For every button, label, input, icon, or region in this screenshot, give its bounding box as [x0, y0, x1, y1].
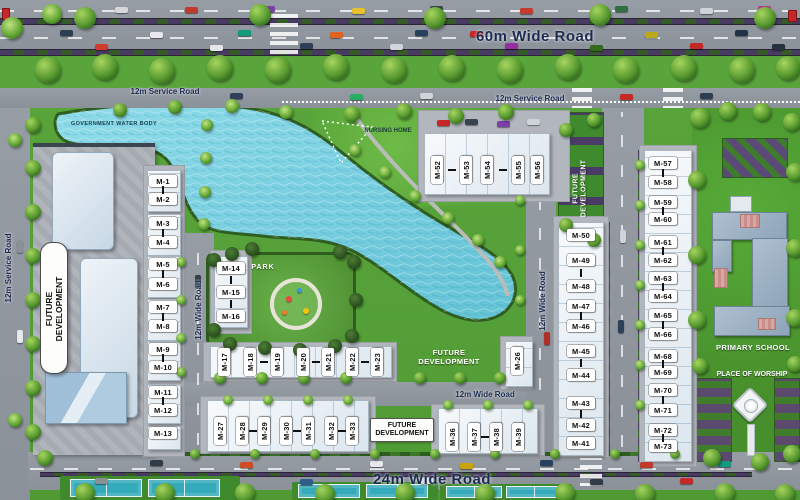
tree	[754, 7, 776, 29]
building-label: M-12	[149, 404, 177, 416]
building-label: M-48	[567, 280, 595, 292]
car	[735, 30, 748, 36]
tree	[472, 234, 484, 246]
tree	[258, 341, 272, 355]
building-pair-connector	[580, 269, 583, 277]
tree	[25, 248, 41, 264]
tree	[225, 247, 239, 261]
car	[700, 8, 713, 14]
tree	[635, 484, 655, 500]
school-roof-detail	[714, 268, 728, 288]
future-development-strip-label: FUTURE DEVELOPMENT	[573, 143, 590, 233]
building-pair-connector	[162, 313, 165, 321]
car	[300, 43, 313, 49]
tree	[381, 57, 407, 83]
building-label: M-39	[512, 423, 524, 451]
building-pair-connector	[312, 361, 320, 364]
car	[615, 6, 628, 12]
tree	[443, 400, 453, 410]
building-label: M-55	[512, 156, 524, 184]
tree	[25, 424, 41, 440]
car	[185, 7, 198, 13]
tree	[349, 144, 361, 156]
tree	[279, 105, 293, 119]
worship-dome	[744, 399, 758, 413]
tree	[323, 54, 349, 80]
car	[620, 94, 633, 100]
tree	[550, 449, 560, 459]
building-label: M-4	[149, 236, 177, 248]
tree	[35, 57, 61, 83]
building-pair-connector	[162, 186, 165, 194]
tree	[235, 483, 255, 500]
tree	[245, 242, 259, 256]
building-label: M-47	[567, 300, 595, 312]
tree	[515, 245, 525, 255]
glass-building	[45, 372, 127, 424]
tree	[610, 449, 620, 459]
building-label: M-33	[346, 417, 358, 445]
tree	[176, 367, 186, 377]
tree	[344, 106, 360, 122]
car	[60, 30, 73, 36]
building-label: M-56	[531, 156, 543, 184]
building-label: M-71	[649, 404, 677, 416]
road-label-service-top-left: 12m Service Road	[115, 88, 215, 96]
tree	[635, 280, 645, 290]
car	[350, 94, 363, 100]
road-sign	[788, 10, 797, 22]
car	[95, 478, 108, 484]
tree	[198, 218, 210, 230]
playground-equipment	[303, 308, 309, 314]
tree	[751, 453, 769, 471]
tree	[207, 323, 221, 337]
car	[640, 462, 653, 468]
building-pair-connector	[662, 321, 665, 329]
building-pair-connector	[249, 430, 257, 433]
tree	[1, 17, 23, 39]
car	[772, 44, 785, 50]
building-label: M-44	[567, 369, 595, 381]
tree	[690, 108, 710, 128]
tree	[409, 190, 421, 202]
car	[420, 93, 433, 99]
building-pair-connector	[448, 169, 456, 172]
road-label-12m-wide-mid: 12m Wide Road	[195, 260, 203, 360]
building-label: M-30	[280, 417, 292, 445]
building-label: M-26	[511, 347, 523, 375]
car	[300, 479, 313, 485]
building-label: M-31	[302, 417, 314, 445]
tree	[8, 413, 22, 427]
building-pair-connector	[580, 410, 583, 418]
tree	[587, 113, 601, 127]
building-label: M-70	[649, 384, 677, 396]
building-pair-connector	[338, 430, 346, 433]
car	[330, 32, 343, 38]
building-label: M-53	[460, 156, 472, 184]
tree	[265, 57, 291, 83]
tree	[168, 100, 182, 114]
tree	[249, 4, 271, 26]
tree	[176, 295, 186, 305]
tree	[379, 166, 391, 178]
highway-median	[0, 18, 800, 25]
crosswalk	[270, 14, 298, 56]
playground-ring	[270, 278, 322, 330]
car	[240, 462, 253, 468]
tree	[589, 4, 611, 26]
tree	[786, 163, 800, 181]
tree	[74, 7, 96, 29]
school-building	[714, 306, 790, 336]
car	[497, 121, 510, 127]
lane-marking	[30, 468, 800, 470]
building-pair-connector	[499, 169, 507, 172]
tree	[523, 400, 533, 410]
tree	[635, 160, 645, 170]
building-label: M-66	[649, 328, 677, 340]
tree	[559, 123, 573, 137]
tree	[424, 7, 446, 29]
government-water-body-label: GOVERNMENT WATER BODY	[64, 122, 164, 128]
tree	[349, 293, 363, 307]
primary-school-label: PRIMARY SCHOOL	[705, 343, 800, 352]
tree	[715, 483, 735, 500]
tree	[635, 400, 645, 410]
tree	[786, 239, 800, 257]
tree	[25, 380, 41, 396]
road-label-24m-wide: 24m Wide Road	[352, 472, 512, 487]
car	[618, 320, 624, 333]
building-label: M-54	[481, 156, 493, 184]
building-pair-connector	[162, 270, 165, 278]
tree	[42, 4, 62, 24]
building-label: M-3	[149, 217, 177, 229]
building-label: M-16	[217, 310, 245, 322]
car	[17, 330, 23, 343]
car	[150, 32, 163, 38]
building-label: M-60	[649, 213, 677, 225]
tree	[149, 58, 175, 84]
playground-equipment	[286, 296, 292, 302]
tree	[250, 449, 260, 459]
building-pair-connector	[162, 354, 165, 362]
building-pair-connector	[662, 360, 665, 368]
tree	[37, 450, 53, 466]
tree	[448, 108, 464, 124]
tree	[775, 484, 795, 500]
tree	[515, 295, 525, 305]
place-of-worship-label: PLACE OF WORSHIP	[704, 371, 800, 379]
building-label: M-62	[649, 254, 677, 266]
tree	[199, 186, 211, 198]
park-label: PARK	[246, 264, 280, 272]
tree	[176, 333, 186, 343]
tree	[200, 152, 212, 164]
building-pair-connector	[162, 397, 165, 405]
tennis-court	[506, 486, 562, 498]
building-label: M-43	[567, 397, 595, 409]
building-label: M-27	[214, 417, 226, 445]
tree	[333, 245, 347, 259]
tree	[498, 104, 514, 120]
road-label-12m-wide-center: 12m Wide Road	[539, 251, 547, 351]
building-label: M-52	[431, 156, 443, 184]
tree	[225, 99, 239, 113]
future-development-green-label: FUTURE DEVELOPMENT	[415, 348, 483, 366]
building-label: M-18	[244, 348, 256, 376]
car	[437, 120, 450, 126]
tree	[414, 372, 426, 384]
tree	[635, 200, 645, 210]
building-label: M-32	[325, 417, 337, 445]
car	[210, 45, 223, 51]
building-pair-connector	[580, 312, 583, 320]
tree	[787, 356, 800, 372]
tree	[8, 133, 22, 147]
tree	[442, 212, 454, 224]
road-label-60m-wide: 60m Wide Road	[455, 29, 615, 44]
building-label: M-2	[149, 193, 177, 205]
building-label: M-57	[649, 157, 677, 169]
building-label: M-6	[149, 278, 177, 290]
tree	[370, 449, 380, 459]
school-roof-detail	[758, 318, 776, 330]
car	[540, 460, 553, 466]
building-pair-connector	[662, 247, 665, 255]
building-pair-connector	[361, 361, 369, 364]
future-development-pill-text: FUTURE DEVELOPMENT	[41, 274, 69, 344]
building-label: M-65	[649, 309, 677, 321]
car	[115, 7, 128, 13]
building-pair-connector	[293, 430, 301, 433]
building-label: M-20	[297, 348, 309, 376]
tree	[753, 103, 771, 121]
playground-equipment	[282, 310, 287, 315]
car	[590, 45, 603, 51]
tree	[729, 57, 755, 83]
building-label: M-7	[149, 301, 177, 313]
lane-marking	[0, 37, 800, 39]
tree	[92, 54, 118, 80]
building-pair-connector	[662, 207, 665, 215]
township-master-plan: 60m Wide Road 24m Wide Road 12m Service …	[0, 0, 800, 500]
flower-bed	[722, 138, 788, 178]
building-pair-connector	[162, 229, 165, 237]
road-label-12m-wide-horizontal: 12m Wide Road	[435, 391, 535, 399]
tree	[776, 56, 800, 80]
building-label: M-64	[649, 290, 677, 302]
building-label: M-49	[567, 254, 595, 266]
tree	[719, 102, 737, 120]
tree	[223, 395, 233, 405]
car	[680, 478, 693, 484]
tree	[303, 395, 313, 405]
playground-equipment	[297, 288, 302, 293]
car	[465, 119, 478, 125]
tree	[688, 171, 706, 189]
car	[238, 30, 251, 36]
tree	[439, 55, 465, 81]
future-development-pill: FUTURE DEVELOPMENT	[40, 242, 68, 374]
tree	[113, 103, 127, 117]
car	[390, 44, 403, 50]
tree	[430, 449, 440, 459]
car	[352, 8, 365, 14]
car	[95, 44, 108, 50]
building-pair-connector	[481, 436, 489, 439]
car	[645, 32, 658, 38]
lane-marking	[621, 112, 623, 447]
tree	[343, 395, 353, 405]
tree	[263, 395, 273, 405]
tree	[688, 246, 706, 264]
building-label: M-13	[149, 427, 177, 439]
tree	[454, 372, 466, 384]
nursing-home-label: NURSING HOME	[360, 128, 416, 136]
car	[700, 93, 713, 99]
tree	[555, 483, 575, 500]
tree	[555, 54, 581, 80]
tree	[635, 240, 645, 250]
car	[527, 119, 540, 125]
tree	[310, 449, 320, 459]
building-pair-connector	[230, 276, 233, 284]
tree	[635, 360, 645, 370]
building-label: M-58	[649, 176, 677, 188]
tree	[783, 445, 800, 463]
building-label: M-36	[446, 423, 458, 451]
building-label: M-19	[271, 348, 283, 376]
building-label: M-29	[258, 417, 270, 445]
building-pair-connector	[260, 361, 268, 364]
future-development-box: FUTURE DEVELOPMENT	[370, 418, 434, 442]
tree	[201, 119, 213, 131]
car	[690, 43, 703, 49]
car	[415, 30, 428, 36]
building-pair-connector	[580, 359, 583, 367]
building-pair-connector	[662, 434, 665, 442]
tree	[613, 57, 639, 83]
tree	[256, 372, 268, 384]
tree	[190, 449, 200, 459]
building-label: M-37	[468, 423, 480, 451]
crosswalk	[663, 88, 683, 108]
tree	[207, 55, 233, 81]
building-label: M-8	[149, 320, 177, 332]
commercial-building	[52, 152, 114, 250]
road-label-service-top-right: 12m Service Road	[480, 95, 580, 103]
tree	[25, 292, 41, 308]
tree	[155, 483, 175, 500]
tree	[494, 372, 506, 384]
worship-walkway	[747, 424, 755, 456]
tree	[25, 160, 41, 176]
road-label-service-left: 12m Service Road	[5, 218, 13, 318]
building-label: M-17	[218, 348, 230, 376]
tree	[345, 329, 359, 343]
car	[17, 240, 23, 253]
building-label: M-22	[346, 348, 358, 376]
tree	[786, 309, 800, 327]
tree	[347, 255, 361, 269]
tree	[25, 117, 41, 133]
building-label: M-21	[322, 348, 334, 376]
tree	[497, 57, 523, 83]
school-roof-detail	[740, 214, 760, 228]
building-pair-connector	[662, 169, 665, 177]
car	[620, 230, 626, 243]
building-label: M-46	[567, 320, 595, 332]
tree	[75, 483, 95, 500]
building-pair-connector	[230, 300, 233, 308]
building-pair-connector	[662, 396, 665, 404]
tree	[315, 484, 335, 500]
car	[150, 460, 163, 466]
building-label: M-42	[567, 419, 595, 431]
tree	[25, 336, 41, 352]
building-label: M-15	[217, 286, 245, 298]
school-building	[752, 238, 788, 310]
building-pair-connector	[662, 283, 665, 291]
tree	[688, 311, 706, 329]
tree	[396, 103, 412, 119]
car	[520, 8, 533, 14]
tree	[635, 320, 645, 330]
car	[460, 463, 473, 469]
tree	[494, 256, 506, 268]
building-label: M-45	[567, 345, 595, 357]
tree	[703, 449, 721, 467]
tree	[483, 400, 493, 410]
building-label: M-41	[567, 437, 595, 449]
building-label: M-10	[149, 361, 177, 373]
tree	[25, 204, 41, 220]
building-label: M-23	[371, 348, 383, 376]
tree	[515, 195, 525, 205]
building-label: M-28	[236, 417, 248, 445]
building-label: M-14	[217, 262, 245, 274]
tree	[671, 55, 697, 81]
building-label: M-38	[490, 423, 502, 451]
tree	[176, 257, 186, 267]
tree	[783, 113, 800, 131]
car	[590, 479, 603, 485]
building-label: M-5	[149, 258, 177, 270]
school-building	[730, 196, 752, 212]
car	[370, 461, 383, 467]
